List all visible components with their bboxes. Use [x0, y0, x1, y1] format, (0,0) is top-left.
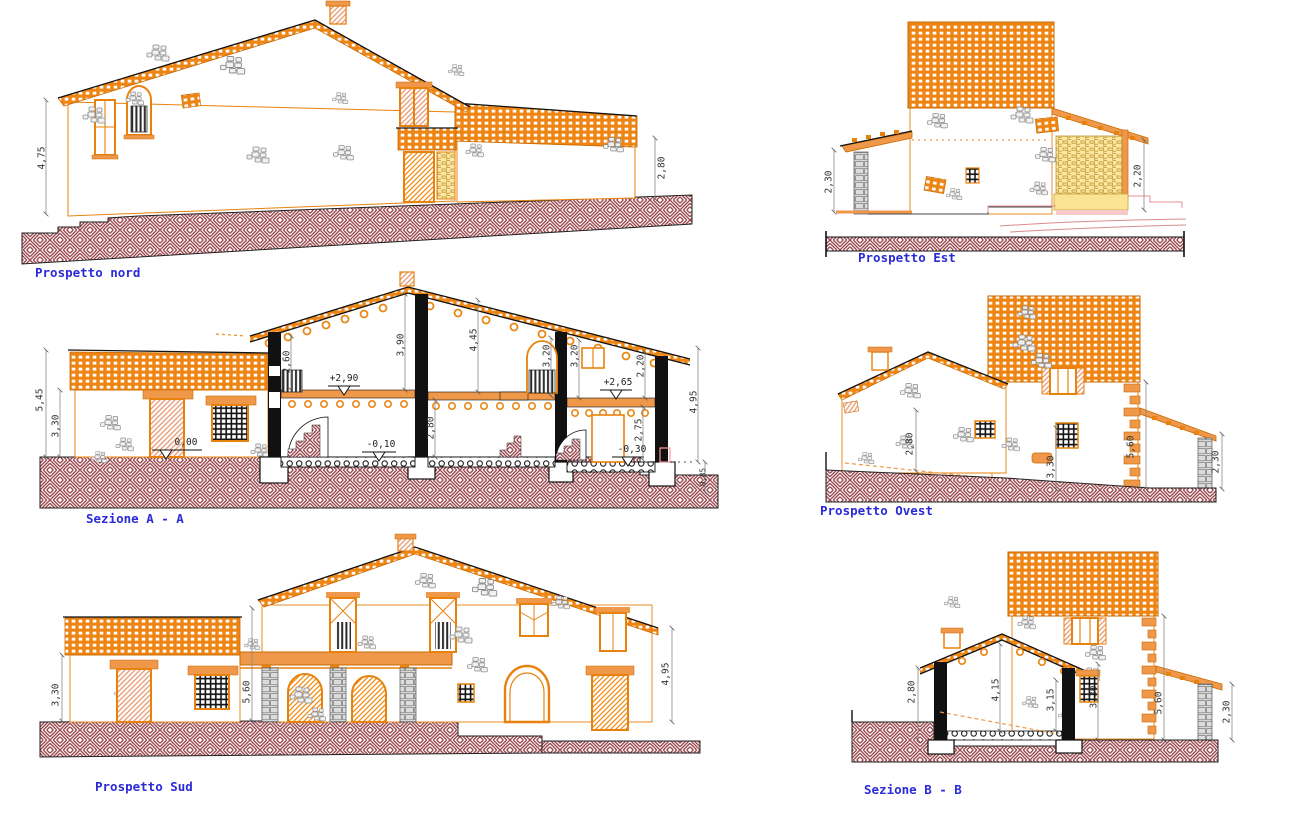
dim-label: 4,45 — [469, 329, 480, 352]
dim-label: 2,60 — [282, 351, 293, 374]
dim-label: 5,60 — [242, 681, 253, 704]
chimney — [326, 1, 350, 24]
title-prospetto-nord: Prospetto nord — [35, 265, 140, 280]
arch-portal — [505, 666, 549, 722]
tile-patch — [924, 176, 946, 193]
drawing-prospetto-ovest — [818, 288, 1238, 523]
porch-roof — [396, 128, 458, 150]
dim-label: 5,45 — [35, 389, 46, 412]
gable-window — [582, 348, 604, 368]
dim-label: 4,95 — [689, 391, 700, 414]
annex-door — [150, 399, 184, 457]
dim-label: 2,80 — [657, 157, 668, 180]
dim-label: 3,30 — [51, 684, 62, 707]
drawing-sheet: Prospetto nord 4,75 2,80 Sezione A - A 5… — [0, 0, 1300, 839]
lean-to — [1156, 666, 1222, 740]
window-shuttered — [396, 82, 432, 126]
drawing-prospetto-nord — [20, 2, 710, 287]
big-roof — [908, 22, 1054, 108]
dim-label: 3,20 — [570, 345, 581, 368]
tile-patch — [181, 93, 201, 108]
annex-wall — [457, 141, 635, 202]
dim-label: 4,95 — [661, 663, 672, 686]
window-shuttered — [1064, 618, 1106, 644]
window-grille-2 — [1056, 423, 1078, 448]
dim-label: 3,20 — [542, 345, 553, 368]
window-shuttered — [1042, 368, 1084, 394]
dim-label: 2,20 — [636, 355, 647, 378]
annex-roof — [70, 352, 268, 390]
chimney — [395, 534, 416, 551]
dim-label: 0,85 — [699, 468, 708, 486]
dim-label: 3,15 — [1046, 689, 1057, 712]
dim-label: 3,90 — [396, 334, 407, 357]
ground-strip-right — [542, 741, 700, 753]
title-prospetto-ovest: Prospetto Ovest — [820, 503, 933, 518]
level-label: -0,10 — [367, 439, 396, 450]
dim-label: 5,60 — [1126, 436, 1137, 459]
dim-label: 2,30 — [824, 171, 835, 194]
dim-label: 2,80 — [905, 433, 916, 456]
level-label: -0,30 — [618, 444, 647, 455]
lattice-panel — [437, 152, 455, 199]
window-lintel — [206, 396, 256, 405]
drawing-prospetto-sud — [30, 535, 740, 795]
window-left — [92, 100, 118, 159]
stair-loggia — [500, 436, 521, 457]
dim-label: 3,30 — [51, 415, 62, 438]
title-prospetto-sud: Prospetto Sud — [95, 779, 193, 794]
tile-patch-2 — [1035, 117, 1058, 133]
title-sezione-a-a: Sezione A - A — [86, 511, 184, 526]
door-hatched — [404, 152, 434, 202]
dim-label: 2,20 — [1133, 165, 1144, 188]
door-hatched — [586, 666, 634, 730]
dim-label: 3,30 — [1046, 456, 1057, 479]
dim-label: 2,80 — [907, 681, 918, 704]
window-grille-small — [458, 684, 474, 702]
stair-left — [288, 417, 328, 457]
dim-label: 2,30 — [1222, 701, 1233, 724]
drawing-sezione-a-a — [28, 268, 740, 530]
dim-label: 3,30 — [1089, 686, 1100, 709]
window-grille — [966, 168, 979, 183]
drawing-prospetto-est — [818, 8, 1198, 273]
tile-patch — [843, 401, 859, 413]
annex-window — [212, 405, 248, 441]
lean-to-left — [836, 130, 912, 214]
drawing-sezione-b-b — [848, 540, 1248, 810]
lean-to-right — [1052, 108, 1148, 210]
yellow-base — [1054, 194, 1128, 210]
level-label: 0,00 — [175, 437, 198, 448]
dim-label: 5,60 — [1154, 692, 1165, 715]
window-grille-1 — [975, 421, 995, 438]
title-prospetto-est: Prospetto Est — [858, 250, 956, 265]
ground — [40, 720, 542, 757]
lean-to — [1140, 408, 1216, 489]
dim-label: 4,15 — [991, 679, 1002, 702]
big-roof — [1008, 552, 1158, 616]
dim-label: 2,30 — [1211, 451, 1222, 474]
chimney — [400, 272, 414, 286]
dim-label: 2,75 — [634, 419, 645, 442]
level-label: +2,90 — [330, 373, 359, 384]
gable-annex — [838, 347, 1008, 480]
level-label: +2,65 — [604, 377, 633, 388]
veranda-roof — [240, 652, 452, 670]
title-sezione-b-b: Sezione B - B — [864, 782, 962, 797]
arch-door-2 — [352, 676, 386, 722]
door-lintel — [143, 390, 193, 399]
dim-label: 4,75 — [37, 147, 48, 170]
annex-roof — [63, 617, 242, 655]
lattice-wall — [1056, 136, 1122, 194]
dim-label: 2,80 — [426, 417, 437, 440]
